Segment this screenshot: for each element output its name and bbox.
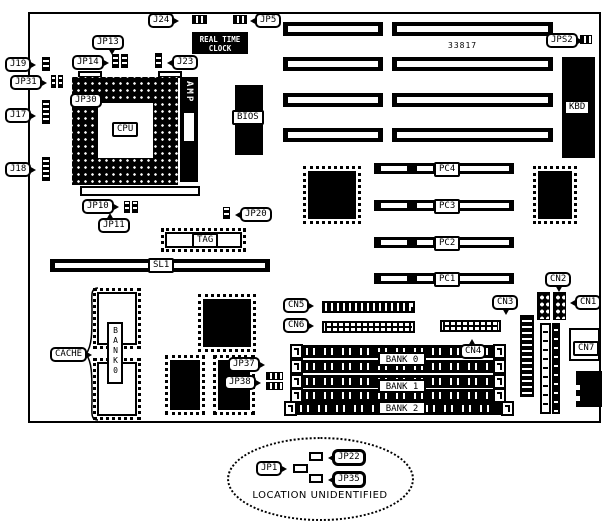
isa-slot-1-long: [392, 22, 553, 36]
amp-window: [184, 113, 194, 141]
cn1-connector: [553, 292, 566, 320]
label-j18: J18: [5, 162, 31, 177]
isa-slot-3-short: [283, 93, 383, 107]
motherboard-diagram: 33817 JPS2 KBD PC4 PC3 PC2 PC1 REAL TIME…: [0, 0, 613, 523]
label-pc2: PC2: [434, 236, 460, 251]
label-jp14: JP14: [72, 55, 104, 70]
label-amp: AMP: [184, 81, 194, 103]
label-cn6: CN6: [283, 318, 309, 333]
label-cn2: CN2: [545, 272, 571, 287]
label-cn3: CN3: [492, 295, 518, 310]
label-j24: J24: [148, 13, 174, 28]
label-j17: J17: [5, 108, 31, 123]
label-bank1: BANK 1: [378, 379, 426, 393]
label-jp5: JP5: [255, 13, 281, 28]
jumper-jp1: [293, 464, 308, 473]
cn6-header: [322, 321, 415, 333]
label-bank0: BANK 0: [378, 352, 426, 366]
label-jp11: JP11: [98, 218, 130, 233]
qfp-chip: [203, 299, 251, 347]
label-bank0-chip: BANK0: [107, 322, 123, 384]
jumper-jp20: [223, 207, 230, 219]
label-j23: J23: [172, 55, 198, 70]
jumper-jp35: [309, 474, 323, 483]
rtc-line2: CLOCK: [192, 44, 248, 53]
label-jp38: JP38: [224, 375, 256, 390]
label-cn5: CN5: [283, 298, 309, 313]
label-jp37: JP37: [228, 357, 260, 372]
label-pc1: PC1: [434, 272, 460, 287]
jumper-jp38: [266, 382, 283, 390]
label-jp22: JP22: [332, 449, 366, 466]
label-jp31: JP31: [10, 75, 42, 90]
cn5-pin1: [409, 303, 413, 307]
jumper-j19: [42, 57, 50, 71]
label-cn4: CN4: [460, 344, 486, 359]
jumper-jp10: [124, 201, 130, 213]
label-cn7: CN7: [573, 341, 599, 356]
real-time-clock-chip: REAL TIME CLOCK: [192, 32, 248, 54]
ellipse-caption: LOCATION UNIDENTIFIED: [240, 490, 400, 501]
cn3-header: [520, 315, 534, 397]
jumper-jp31: [51, 75, 56, 88]
cn2-connector: [537, 292, 550, 320]
cn5-header: [322, 301, 415, 313]
isa-slot-2-short: [283, 57, 383, 71]
label-pc4: PC4: [434, 162, 460, 177]
jumper-j23: [155, 53, 162, 68]
qfp-chip: [308, 171, 356, 219]
label-cache: CACHE: [50, 347, 87, 362]
label-jp1: JP1: [256, 461, 282, 476]
label-jps2: JPS2: [546, 33, 578, 48]
din-keyboard-connector: [576, 371, 602, 407]
label-j19: J19: [5, 57, 31, 72]
jumper-jp13: [121, 54, 128, 68]
label-jp30: JP30: [70, 93, 102, 108]
jumper-j18: [42, 157, 50, 181]
jumper-j24: [192, 15, 207, 24]
isa-slot-1-short: [283, 22, 383, 36]
label-pc3: PC3: [434, 199, 460, 214]
label-bios: BIOS: [232, 110, 264, 125]
isa-slot-2-long: [392, 57, 553, 71]
label-bank2: BANK 2: [378, 401, 426, 415]
isa-slot-3-long: [392, 93, 553, 107]
qfp-chip: [538, 171, 572, 219]
isa-slot-4-short: [283, 128, 383, 142]
power-connector-pins: [552, 323, 560, 414]
power-connector: [540, 323, 551, 414]
label-jp35: JP35: [332, 471, 366, 488]
qfp-chip: [170, 360, 200, 410]
label-jp13: JP13: [92, 35, 124, 50]
board-part-number: 33817: [448, 41, 477, 50]
jumper-j17: [42, 100, 50, 124]
jumper-jp11: [132, 201, 138, 213]
label-cpu: CPU: [112, 122, 138, 137]
jumper-jp5: [233, 15, 247, 24]
label-cn1: CN1: [575, 295, 601, 310]
label-sl1: SL1: [148, 258, 174, 273]
jumper-jp30: [58, 75, 63, 88]
jumper-jp22: [309, 452, 323, 461]
cpu-socket-bar: [80, 186, 200, 196]
label-jp20: JP20: [240, 207, 272, 222]
amp-regulator: AMP: [180, 77, 198, 182]
label-tag: TAG: [192, 233, 218, 248]
isa-slot-4-long: [392, 128, 553, 142]
rtc-line1: REAL TIME: [192, 35, 248, 44]
label-kbd: KBD: [564, 100, 590, 115]
jumper-jp37: [266, 372, 283, 380]
cn4-header: [440, 320, 501, 332]
